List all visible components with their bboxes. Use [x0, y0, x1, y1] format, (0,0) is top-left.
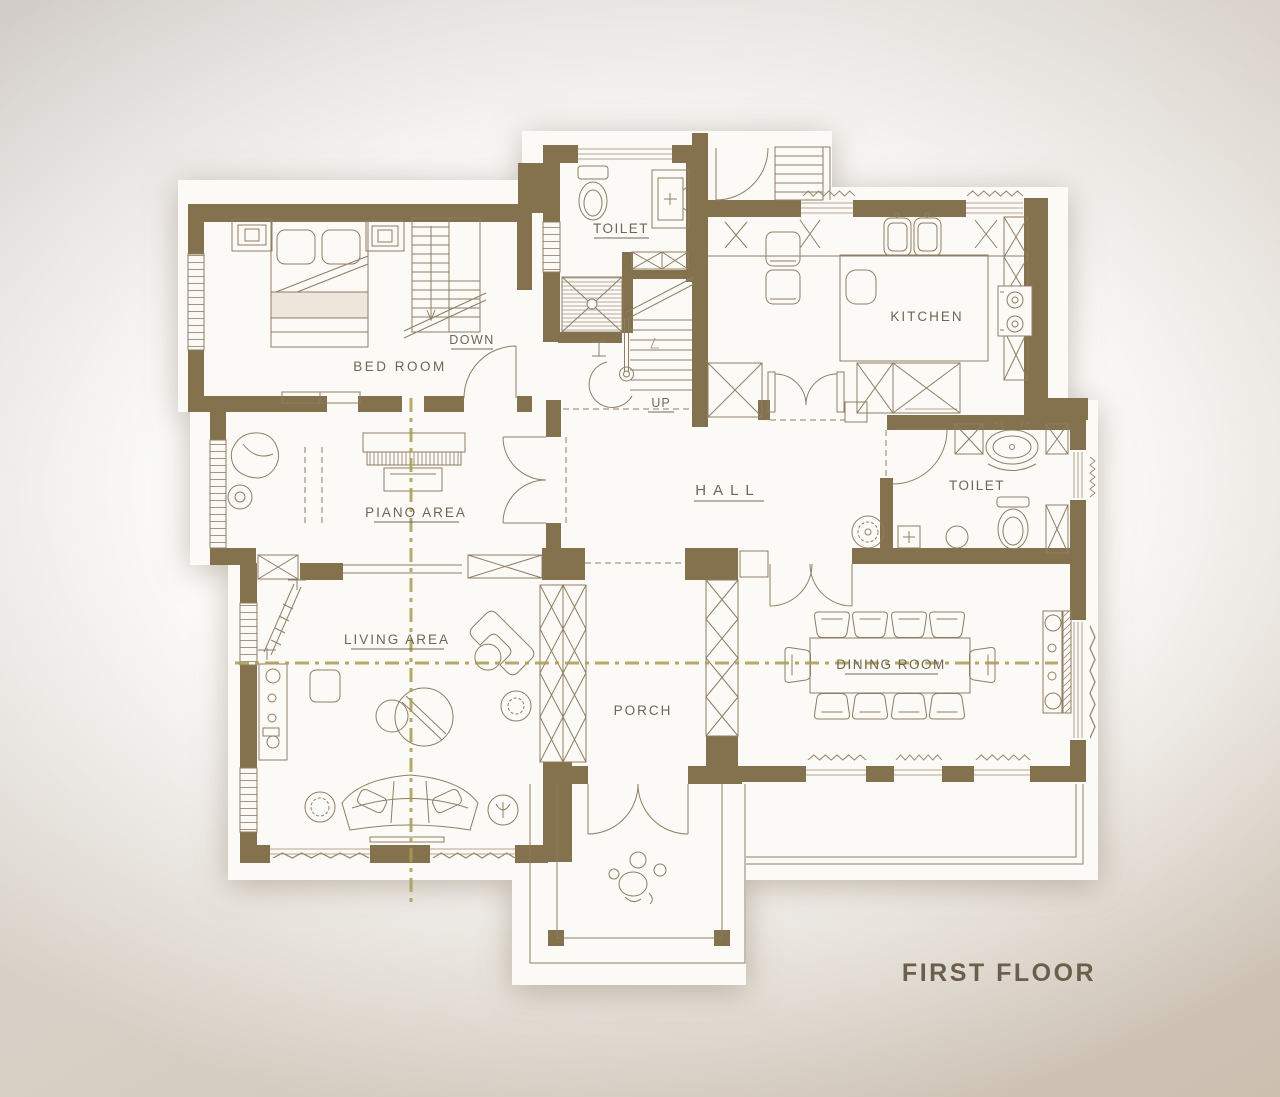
floor-plan: BED ROOM TOILET DOWN UP KITCHEN HALL TOI… [0, 0, 1280, 1097]
room-label-hall: HALL [695, 482, 761, 499]
room-label-piano-area: PIANO AREA [365, 505, 467, 520]
stair-label-down: DOWN [449, 333, 495, 347]
room-label-living-area: LIVING AREA [344, 632, 450, 647]
room-label-toilet-top: TOILET [593, 221, 649, 236]
page-background: BED ROOM TOILET DOWN UP KITCHEN HALL TOI… [0, 0, 1280, 1097]
page-title: FIRST FLOOR [902, 959, 1096, 987]
stove-symbol [998, 286, 1032, 336]
room-label-kitchen: KITCHEN [890, 309, 963, 324]
room-label-dining-room: DINING ROOM [836, 657, 946, 672]
shower-symbol [562, 277, 622, 332]
room-label-porch: PORCH [614, 703, 673, 718]
stair-label-up: UP [651, 396, 670, 410]
room-label-toilet-right: TOILET [949, 478, 1005, 493]
room-label-bedroom: BED ROOM [353, 359, 447, 374]
